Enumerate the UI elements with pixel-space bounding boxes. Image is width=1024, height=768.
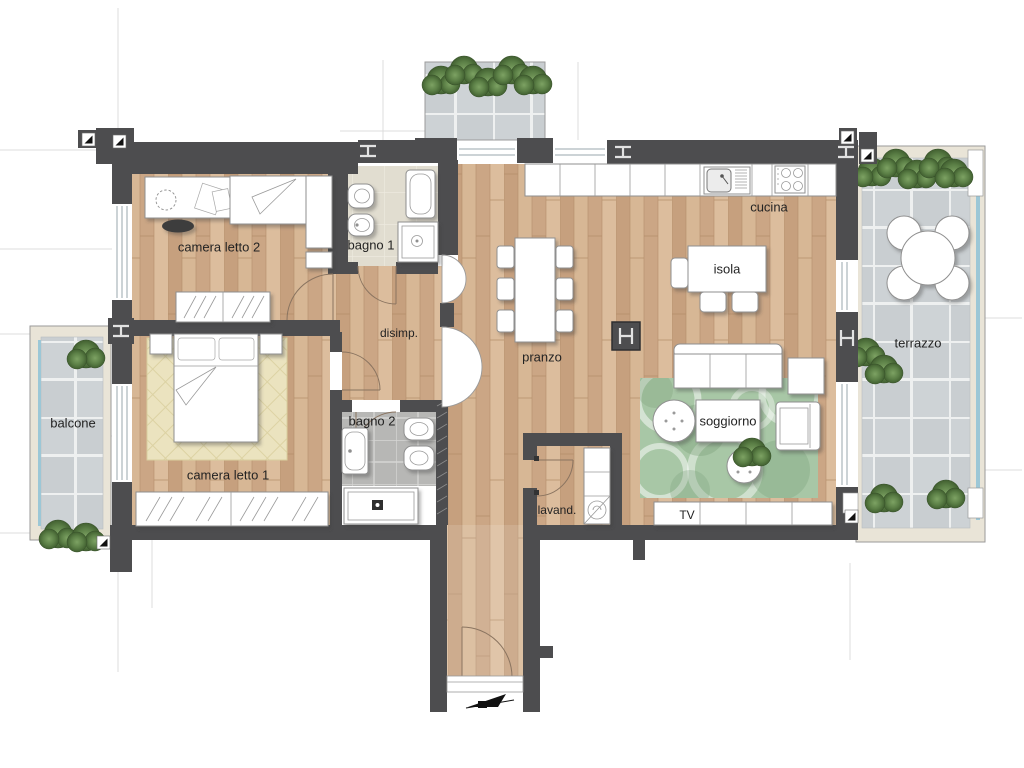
toilet <box>348 184 374 208</box>
room-label-disimpegno: disimp. <box>380 326 418 340</box>
room-label-balcone: balcone <box>50 415 96 430</box>
nightstand <box>150 334 172 354</box>
shower-bagno2 <box>344 488 418 524</box>
wardrobe-bedroom2 <box>176 292 270 322</box>
dining-chair <box>497 278 514 300</box>
wall-bottom-right <box>540 525 858 540</box>
label-isola: isola <box>714 261 742 276</box>
armchair <box>776 402 820 450</box>
shower-bagno1 <box>398 222 438 262</box>
terrace-glass-railing <box>976 168 980 520</box>
floor-plan-svg: camera letto 2 bagno 1 disimp. balcone c… <box>0 0 1024 768</box>
floor-plan-canvas: camera letto 2 bagno 1 disimp. balcone c… <box>0 0 1024 768</box>
sofa <box>674 344 782 388</box>
room-label-bagno-2: bagno 2 <box>349 413 396 428</box>
bath-sink <box>342 428 368 474</box>
bidet <box>348 214 374 236</box>
wardrobe-bedroom1 <box>136 492 328 526</box>
room-label-cucina: cucina <box>750 199 788 214</box>
room-label-bagno-1: bagno 1 <box>348 237 395 252</box>
dining-chair <box>556 246 573 268</box>
kitchen-sink <box>704 167 750 194</box>
side-table <box>788 358 824 394</box>
island-stool <box>732 292 758 312</box>
island-stool <box>700 292 726 312</box>
north-arrow-icon <box>466 694 514 708</box>
wall-top-bedroom2 <box>112 142 358 174</box>
dining-chair <box>497 310 514 332</box>
entrance-threshold <box>447 676 523 692</box>
laundry-cabinet <box>584 448 610 524</box>
room-label-camera-letto-2: camera letto 2 <box>178 239 260 254</box>
wall-bottom-left <box>110 525 432 540</box>
pillow <box>178 338 215 360</box>
bedside-cabinet <box>306 176 332 248</box>
entrance <box>447 676 523 708</box>
single-bed <box>230 176 308 224</box>
dining-set <box>497 238 573 342</box>
nightstand <box>260 334 282 354</box>
wall-top-kitchen <box>607 140 858 164</box>
terrace-table <box>901 231 955 285</box>
laundry-fixtures <box>584 448 610 524</box>
island-stool <box>671 258 688 288</box>
balcony <box>30 326 111 552</box>
desk-chair <box>162 220 194 233</box>
toilet <box>404 446 434 470</box>
dining-chair <box>556 310 573 332</box>
pillow <box>219 338 254 360</box>
round-coffee-table <box>653 400 695 442</box>
steel-column-icon <box>612 322 640 350</box>
room-label-terrazzo: terrazzo <box>895 335 942 350</box>
dining-chair <box>556 278 573 300</box>
planter-box <box>422 56 552 140</box>
room-label-pranzo: pranzo <box>522 349 562 364</box>
room-label-lavanderia: lavand. <box>538 503 577 517</box>
label-tv: TV <box>679 508 694 522</box>
bidet <box>404 418 434 440</box>
room-label-soggiorno: soggiorno <box>699 413 756 428</box>
balcony-glass-railing <box>38 340 41 526</box>
stove <box>775 166 805 193</box>
dining-table <box>515 238 555 342</box>
room-label-camera-letto-1: camera letto 1 <box>187 467 269 482</box>
dining-chair <box>497 246 514 268</box>
